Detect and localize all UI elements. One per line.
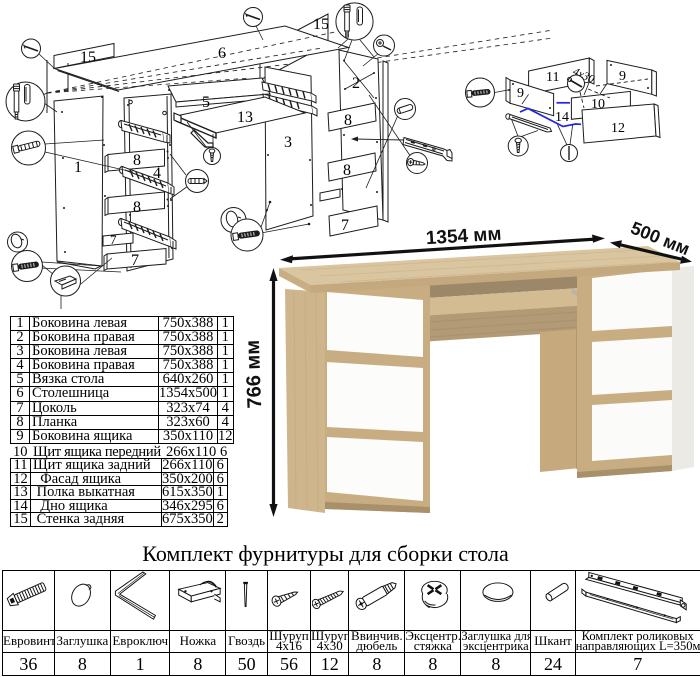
svg-text:8: 8 <box>344 112 352 129</box>
svg-text:9: 9 <box>517 86 524 101</box>
svg-text:13: 13 <box>237 109 253 126</box>
svg-text:7: 7 <box>341 217 349 234</box>
svg-text:1: 1 <box>74 159 82 176</box>
svg-text:8: 8 <box>133 152 141 169</box>
svg-text:7: 7 <box>131 252 139 269</box>
svg-text:6: 6 <box>218 45 226 62</box>
svg-text:8: 8 <box>133 199 141 216</box>
svg-text:2: 2 <box>352 75 360 92</box>
svg-text:7: 7 <box>110 232 117 247</box>
svg-text:3: 3 <box>284 134 292 151</box>
svg-text:5: 5 <box>202 94 210 111</box>
svg-text:11: 11 <box>546 70 559 85</box>
svg-text:15: 15 <box>313 16 329 33</box>
svg-text:12: 12 <box>611 121 625 136</box>
svg-text:766 мм: 766 мм <box>242 340 266 409</box>
svg-text:8: 8 <box>343 162 351 179</box>
